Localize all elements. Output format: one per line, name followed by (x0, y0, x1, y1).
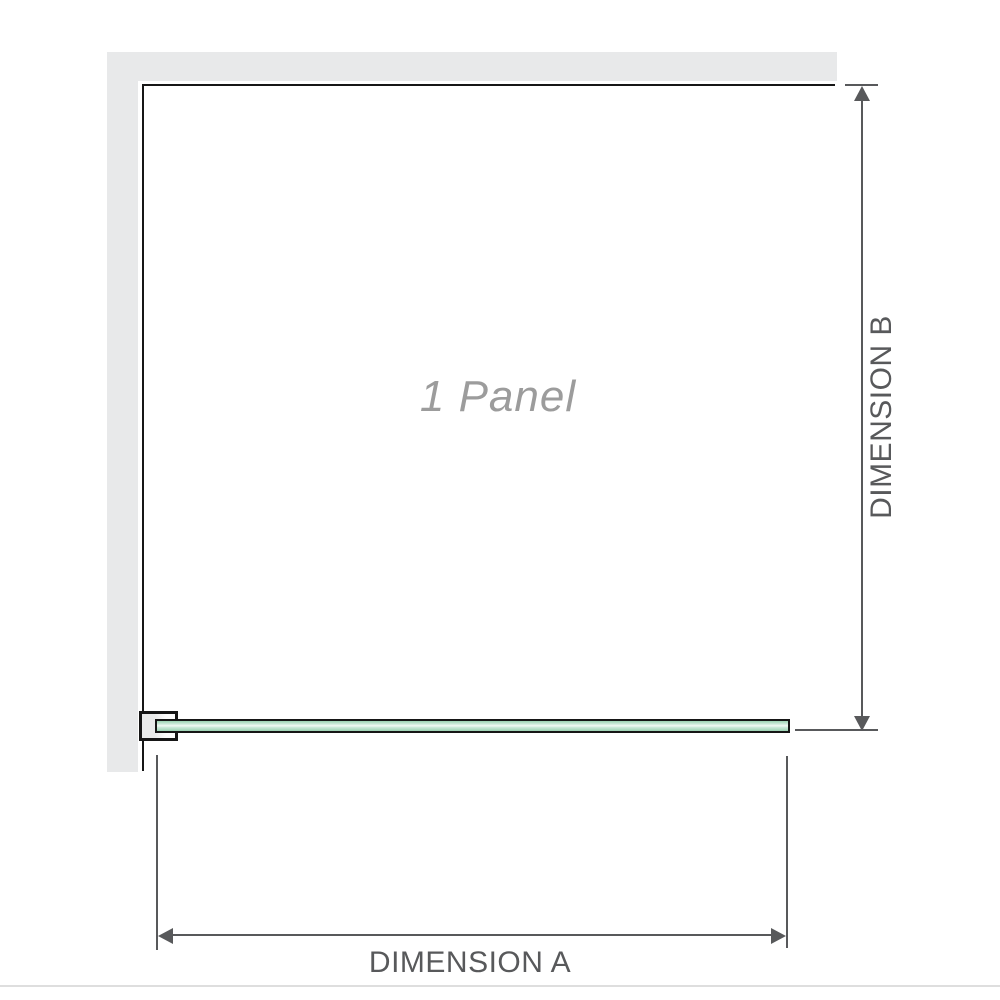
dimension-a-label: DIMENSION A (369, 946, 571, 980)
glass-panel (155, 719, 790, 733)
dimension-b-arrow-down-icon (854, 716, 870, 731)
dimension-a-line (165, 934, 779, 936)
panel-count-label: 1 Panel (420, 372, 576, 422)
dimension-b-line (861, 97, 863, 718)
dimension-a-right-tick (786, 756, 788, 948)
dimension-a-left-tick (156, 755, 158, 950)
wall-top (107, 52, 837, 81)
bottom-divider (0, 985, 1000, 987)
panel-area-top-edge (142, 84, 835, 86)
dimension-a-arrow-right-icon (771, 928, 786, 944)
panel-area-left-edge (142, 84, 144, 771)
dimension-b-label: DIMENSION B (865, 315, 899, 519)
wall-left (107, 52, 138, 772)
dimension-b-arrow-up-icon (854, 86, 870, 101)
dimension-a-arrow-left-icon (158, 928, 173, 944)
diagram-canvas: 1 Panel DIMENSION B DIMENSION A (0, 0, 1000, 1000)
